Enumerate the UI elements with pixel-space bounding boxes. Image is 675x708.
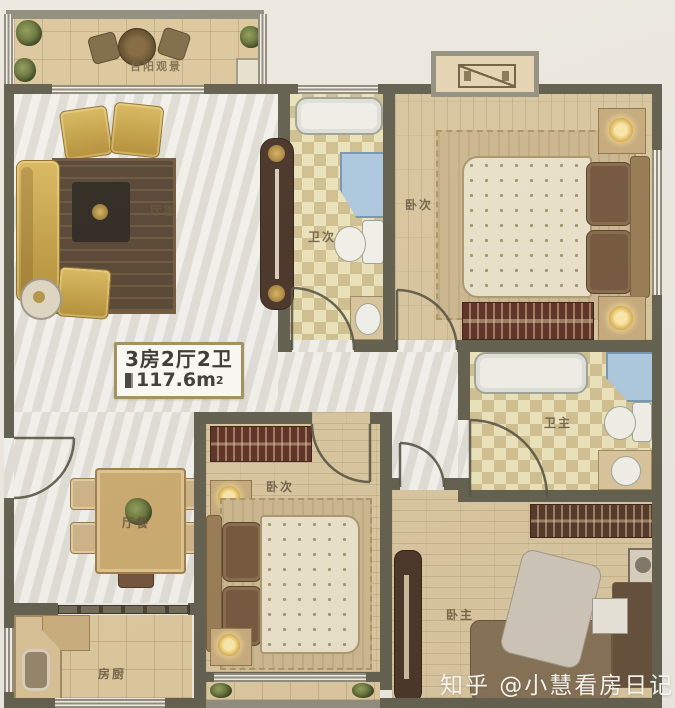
room-label-living: 厅客 — [150, 202, 178, 219]
sliding-door — [58, 605, 190, 614]
unit-area-exponent: 2 — [216, 375, 224, 388]
dining-chair — [70, 522, 98, 554]
armchair — [109, 102, 164, 159]
window — [258, 14, 267, 86]
sofa-back-cushion — [21, 167, 33, 295]
nightstand — [592, 598, 628, 634]
speaker-knob — [268, 285, 285, 302]
wall — [380, 412, 392, 690]
window — [298, 85, 378, 94]
ac-glyph — [502, 71, 509, 81]
balcony-slider — [52, 85, 204, 94]
door-opening — [4, 438, 14, 498]
plant-icon — [352, 683, 374, 698]
dining-table: 厅餐 — [95, 468, 186, 574]
lamp-icon — [609, 118, 633, 142]
door-opening — [312, 412, 370, 424]
watermark: 知乎 @小慧看房日记 — [440, 666, 674, 700]
plant-icon — [16, 20, 42, 46]
tv-console — [260, 138, 294, 310]
tv-screen — [275, 169, 279, 279]
shower-tray — [606, 352, 652, 402]
side-table — [20, 278, 62, 320]
room-label-kitchen: 房厨 — [98, 665, 126, 682]
room-label-bath-secondary: 卫次 — [308, 228, 336, 245]
balcony-railing — [6, 10, 264, 19]
room-label-bedroom-master: 卧主 — [446, 606, 474, 623]
balcony-railing — [204, 700, 380, 708]
bed-headboard — [630, 156, 650, 298]
room-label-bedroom-secondary1: 卧次 — [405, 196, 433, 213]
ac-fan — [635, 557, 651, 573]
lamp-icon — [218, 634, 240, 656]
wall — [4, 698, 55, 708]
side-table-decor — [33, 291, 45, 303]
room-label-bath-master: 卫主 — [544, 414, 572, 431]
room-label-dining: 厅餐 — [122, 514, 150, 531]
plant-icon — [14, 58, 36, 82]
bathroom-secondary-floor: 卫次 — [290, 94, 383, 340]
kitchen-floor: 房厨 — [14, 615, 192, 698]
wall — [458, 490, 662, 502]
unit-info-box: 3房2厅2卫 117.6m2 — [114, 342, 244, 399]
bed-mattress — [462, 156, 592, 298]
door-opening — [292, 340, 354, 352]
bedroom-secondary1-floor: 卧次 — [395, 94, 652, 340]
area-icon — [125, 373, 133, 388]
wall — [383, 84, 395, 348]
wall — [278, 340, 292, 352]
toilet — [604, 406, 636, 440]
shower-tray — [340, 152, 383, 218]
wardrobe — [210, 426, 312, 462]
toilet — [334, 226, 366, 262]
wall — [458, 352, 470, 420]
ac-platform — [431, 51, 539, 97]
window — [4, 14, 13, 88]
bed-mattress — [260, 515, 360, 654]
window — [652, 150, 662, 295]
window — [55, 699, 165, 708]
wall — [4, 603, 58, 615]
dining-chair — [70, 478, 98, 510]
bathtub — [295, 97, 383, 135]
floorplan-photo: 台阳观景 厅客 厅餐 — [0, 0, 675, 708]
bed-pillow — [586, 230, 632, 294]
wardrobe — [462, 302, 594, 340]
coffee-table — [72, 182, 130, 242]
balcony-top-floor: 台阳观景 — [14, 18, 260, 88]
unit-spec: 3房2厅2卫 — [125, 348, 233, 370]
door-opening — [397, 340, 457, 352]
hallway-floor — [278, 348, 458, 412]
unit-area-row: 117.6m2 — [125, 370, 233, 392]
window — [4, 628, 14, 692]
ac-unit — [628, 548, 652, 586]
balcony-chair — [156, 26, 191, 61]
wall — [4, 84, 14, 438]
armchair — [59, 105, 113, 161]
table-decor — [92, 204, 108, 220]
ac-glyph — [464, 71, 471, 81]
wall — [194, 412, 312, 424]
kitchen-sink — [22, 649, 50, 691]
sink-counter — [350, 296, 383, 340]
wall — [444, 478, 470, 490]
bedroom-secondary2-floor: 卧次 — [206, 424, 380, 672]
armchair — [56, 266, 111, 320]
bed-pillow — [586, 162, 632, 226]
tv-console — [394, 550, 422, 698]
wall — [537, 84, 662, 94]
sink — [611, 456, 641, 486]
wall — [354, 340, 397, 352]
sink — [355, 303, 381, 335]
dining-room-floor: 厅餐 — [14, 412, 194, 603]
wall — [652, 84, 662, 150]
balcony-slider — [214, 673, 366, 682]
tv-screen — [404, 575, 409, 679]
room-label-balcony: 台阳观景 — [130, 58, 182, 74]
sink-counter — [598, 450, 652, 490]
lamp-icon — [609, 306, 633, 330]
bathtub — [474, 352, 588, 394]
balcony-bottom-floor — [206, 682, 380, 700]
bathroom-master-floor: 卫主 — [470, 352, 652, 490]
plant-icon — [210, 683, 232, 698]
floor-drain — [236, 58, 260, 86]
room-label-bedroom-secondary2: 卧次 — [266, 478, 294, 495]
plant-icon — [240, 26, 260, 48]
bed-pillow — [222, 522, 262, 582]
unit-area: 117.6m — [136, 370, 216, 392]
wardrobe — [530, 504, 652, 538]
wall — [457, 340, 662, 352]
balcony-chair — [87, 31, 121, 65]
wall — [188, 603, 204, 615]
wall — [194, 412, 206, 708]
speaker-knob — [268, 145, 285, 162]
ac-platform-icon — [458, 64, 516, 88]
